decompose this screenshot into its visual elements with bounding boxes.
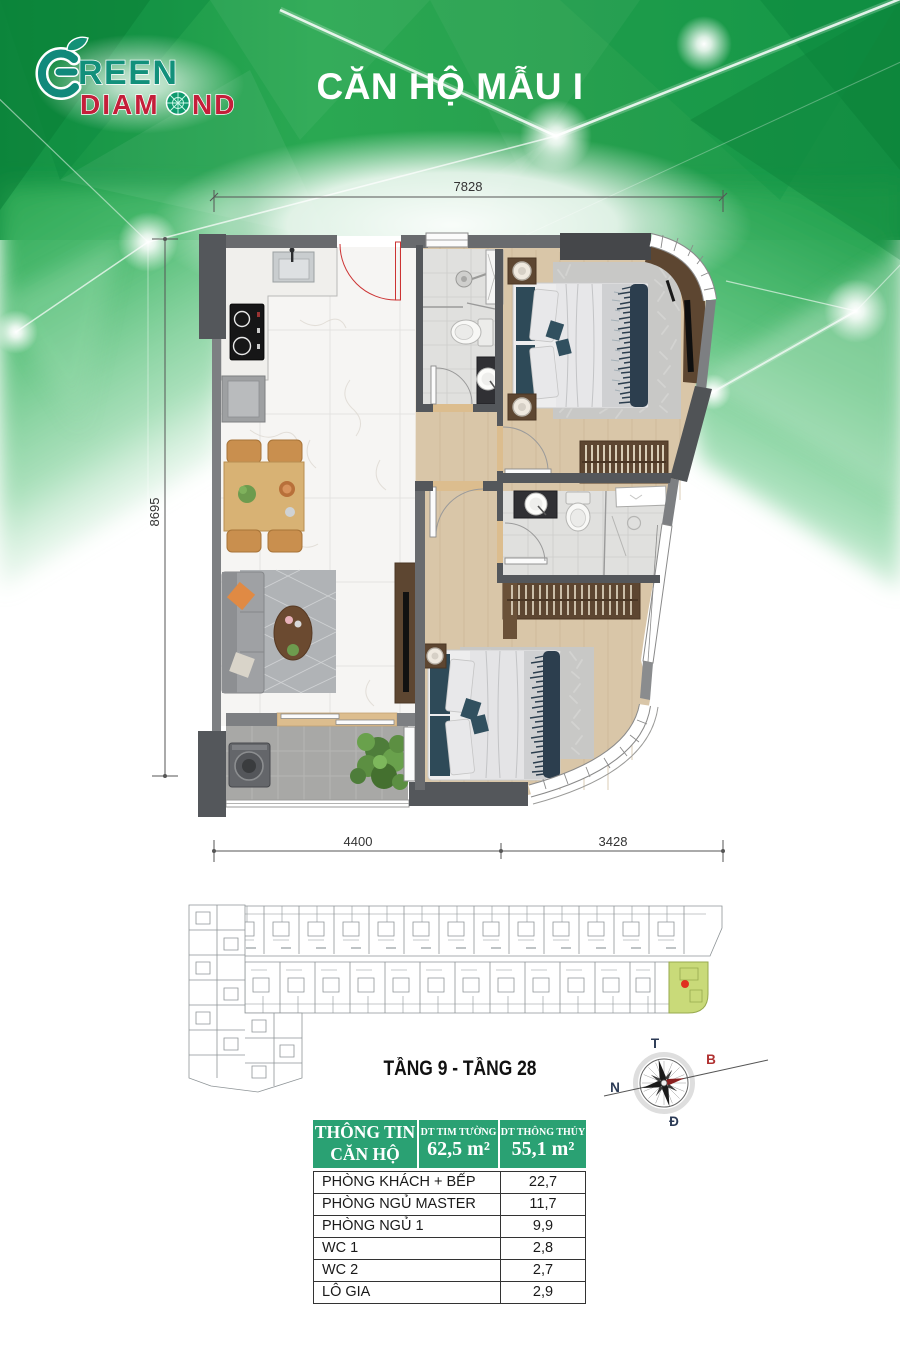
svg-text:4400: 4400: [344, 834, 373, 849]
svg-text:B: B: [706, 1052, 716, 1067]
svg-text:T: T: [651, 1036, 660, 1051]
svg-text:8695: 8695: [147, 498, 162, 527]
svg-text:N: N: [610, 1080, 620, 1095]
svg-text:3428: 3428: [599, 834, 628, 849]
svg-text:7828: 7828: [454, 179, 483, 194]
svg-text:Đ: Đ: [669, 1114, 679, 1129]
